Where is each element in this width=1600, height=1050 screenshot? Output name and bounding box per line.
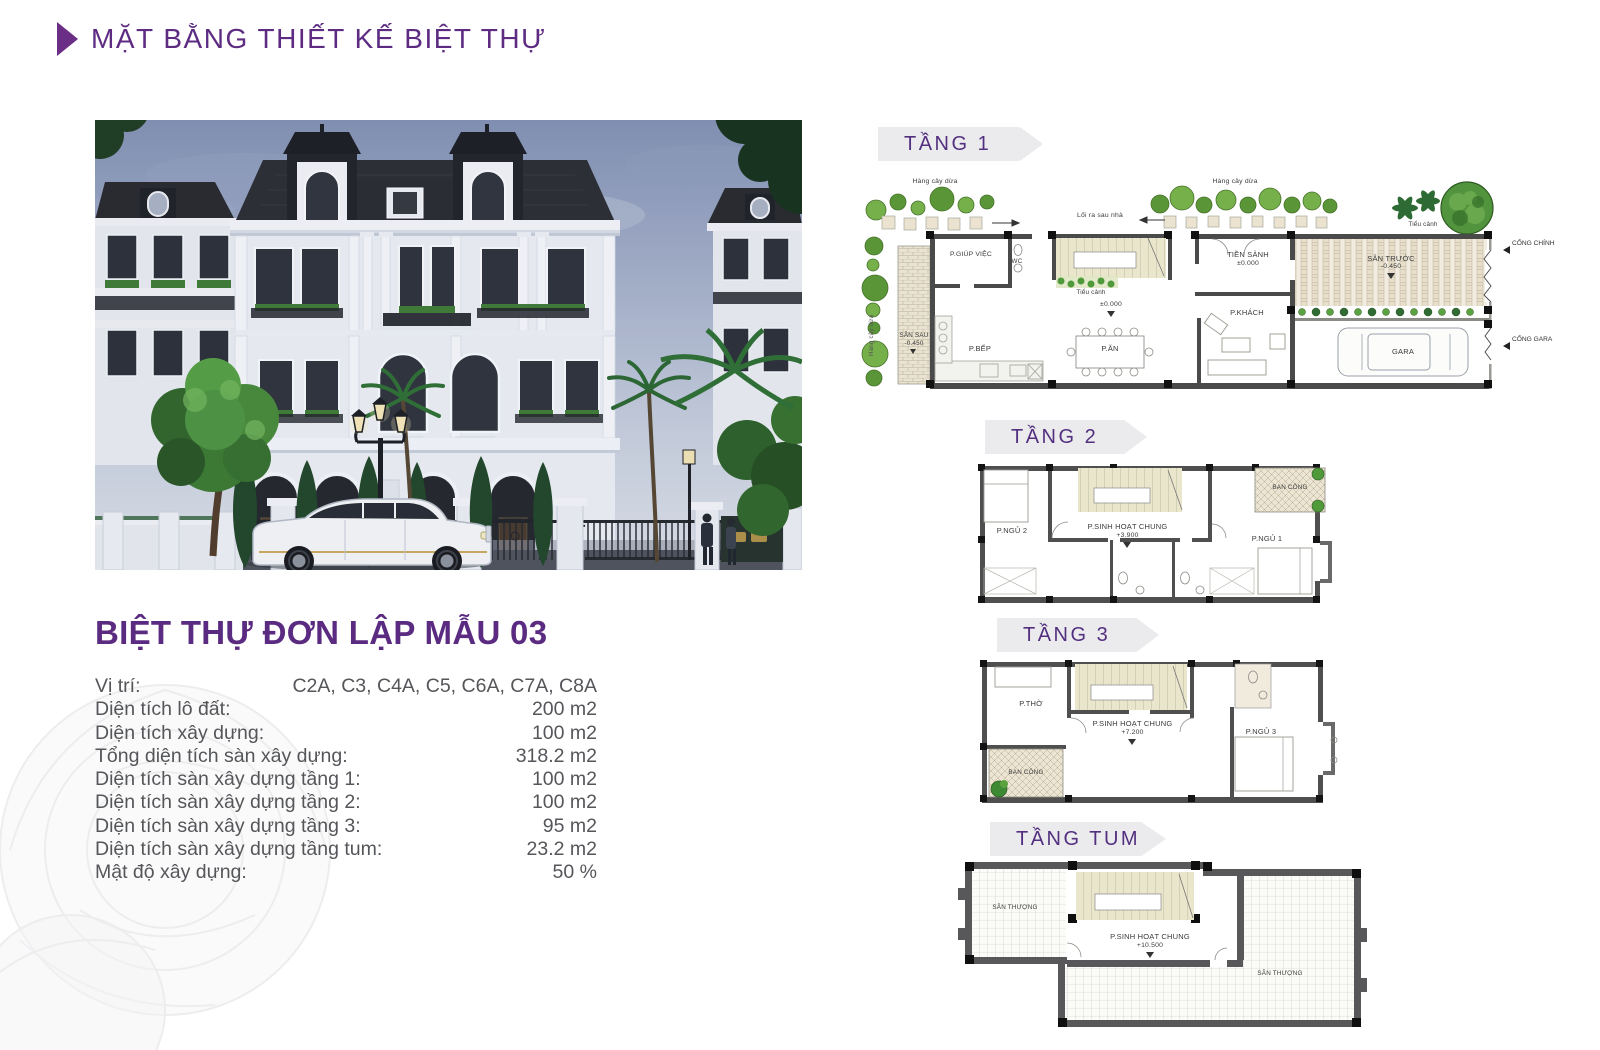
spec-label: Diện tích xây dựng:	[95, 722, 264, 745]
spec-label: Mật độ xây dựng:	[95, 861, 247, 884]
villa-title: BIỆT THỰ ĐƠN LẬP MẪU 03	[95, 614, 547, 652]
banner-floor1: TẦNG 1	[878, 127, 1043, 161]
label-bedroom1: P.NGỦ 1	[1232, 534, 1302, 543]
banner-floor3-label: TẦNG 3	[1023, 624, 1110, 647]
brochure-page: { "page": { "section_title": "MẶT BẰNG T…	[0, 0, 1600, 1044]
spec-value: 318.2 m2	[516, 745, 597, 768]
spec-row: Mật độ xây dựng:50 %	[95, 861, 597, 884]
spec-label: Diện tích sàn xây dựng tầng 3:	[95, 815, 361, 838]
spec-value: 200 m2	[532, 698, 597, 721]
label-bedroom2: P.NGỦ 2	[980, 526, 1044, 535]
label-coconut-row-right: Hàng cây dừa	[1190, 178, 1280, 186]
label-common-room: P.SINH HOẠT CHUNG	[1065, 522, 1190, 531]
spec-row: Diện tích lô đất:200 m2	[95, 698, 597, 721]
label-balcony: BAN CÔNG	[1256, 484, 1324, 492]
label-front-yard-level: -0.450	[1351, 263, 1431, 271]
label-maid-room: P.GIÚP VIỆC	[944, 251, 998, 259]
floorplan-tum-drawing	[955, 848, 1367, 1034]
spec-row: Vị trí:C2A, C3, C4A, C5, C6A, C7A, C8A	[95, 675, 597, 698]
banner-floor1-label: TẦNG 1	[904, 133, 991, 156]
banner-floor2-label: TẦNG 2	[1011, 426, 1098, 449]
label-back-yard: SÂN SAU	[894, 332, 934, 340]
label-coconut-row-left: Hàng cây dừa	[890, 178, 980, 186]
villa-render	[95, 120, 802, 570]
label-common-room: P.SINH HOẠT CHUNG	[1075, 932, 1225, 941]
spec-row: Tổng diện tích sàn xây dựng:318.2 m2	[95, 745, 597, 768]
arrow-bullet-icon	[57, 22, 78, 56]
spec-value: 23.2 m2	[527, 838, 597, 861]
label-coconut-column: Hàng cây dừa	[868, 315, 875, 356]
floorplan-3: P.THỜ P.SINH HOẠT CHUNG +7.200 P.NGỦ 3 B…	[935, 645, 1345, 811]
label-back-yard-level: -0.450	[894, 340, 934, 348]
spec-value: 100 m2	[532, 768, 597, 791]
section-title: MẶT BẰNG THIẾT KẾ BIỆT THỰ	[91, 23, 547, 55]
label-common-level: +3.900	[1065, 532, 1190, 540]
label-gate-main: CỔNG CHÍNH	[1512, 240, 1556, 248]
spec-label: Diện tích sàn xây dựng tầng 1:	[95, 768, 361, 791]
level-marker-icon	[1146, 952, 1154, 958]
level-marker-icon	[1387, 273, 1395, 279]
label-balcony: BAN CÔNG	[991, 769, 1061, 777]
spec-label: Vị trí:	[95, 675, 141, 698]
floorplan-1-drawing	[860, 168, 1560, 404]
label-worship-room: P.THỜ	[1001, 699, 1061, 708]
banner-floor2: TẦNG 2	[985, 420, 1147, 454]
spec-value: 100 m2	[532, 791, 597, 814]
label-common-level: +7.200	[1070, 729, 1195, 737]
spec-value: 50 %	[553, 861, 597, 884]
gate-arrow-icon	[1503, 246, 1510, 254]
label-gate-garage: CỔNG GARA	[1512, 336, 1556, 344]
label-terrace-right: SÂN THƯỢNG	[1215, 970, 1345, 978]
level-marker-icon	[1128, 739, 1136, 745]
spec-table: Vị trí:C2A, C3, C4A, C5, C6A, C7A, C8A D…	[95, 675, 597, 885]
label-mini-garden: Tiểu cảnh	[1056, 289, 1126, 297]
spec-value: C2A, C3, C4A, C5, C6A, C7A, C8A	[292, 675, 597, 698]
floorplan-2: P.NGỦ 2 P.SINH HOẠT CHUNG +3.900 P.NGỦ 1…	[960, 450, 1335, 606]
label-bedroom3: P.NGỦ 3	[1227, 727, 1295, 736]
level-marker-icon	[1123, 542, 1131, 548]
label-hall: TIỀN SẢNH	[1210, 250, 1286, 259]
spec-row: Diện tích sàn xây dựng tầng 3:95 m2	[95, 815, 597, 838]
label-common-room: P.SINH HOẠT CHUNG	[1070, 719, 1195, 728]
label-level-zero: ±0.000	[1086, 301, 1136, 309]
label-dining: P.ĂN	[1082, 344, 1138, 353]
label-garage: GARA	[1373, 347, 1433, 356]
label-mini-garden-right: Tiểu cảnh	[1396, 221, 1450, 229]
floorplan-tum: SÂN THƯỢNG P.SINH HOẠT CHUNG +10.500 SÂN…	[955, 848, 1367, 1034]
label-living: P.KHÁCH	[1212, 308, 1282, 317]
label-wc: WC	[1006, 258, 1028, 266]
section-header: MẶT BẰNG THIẾT KẾ BIỆT THỰ	[57, 22, 547, 56]
label-terrace-left: SÂN THƯỢNG	[969, 904, 1061, 912]
floorplan-1: Hàng cây dừa Hàng cây dừa Hàng cây dừa L…	[860, 168, 1560, 404]
level-marker-icon	[910, 349, 916, 354]
gate-arrow-icon	[1503, 342, 1510, 350]
spec-row: Diện tích sàn xây dựng tầng 1:100 m2	[95, 768, 597, 791]
spec-value: 95 m2	[543, 815, 597, 838]
label-hall-level: ±0.000	[1210, 260, 1286, 268]
label-kitchen: P.BẾP	[952, 344, 1008, 353]
spec-value: 100 m2	[532, 722, 597, 745]
villa-photo	[95, 120, 802, 570]
level-marker-icon	[1107, 311, 1115, 317]
spec-row: Diện tích xây dựng:100 m2	[95, 722, 597, 745]
label-common-level: +10.500	[1075, 942, 1225, 950]
spec-label: Diện tích sàn xây dựng tầng tum:	[95, 838, 382, 861]
spec-row: Diện tích sàn xây dựng tầng tum:23.2 m2	[95, 838, 597, 861]
spec-label: Diện tích lô đất:	[95, 698, 231, 721]
spec-row: Diện tích sàn xây dựng tầng 2:100 m2	[95, 791, 597, 814]
label-front-yard: SÂN TRƯỚC	[1351, 254, 1431, 263]
label-back-exit: Lối ra sau nhà	[1060, 212, 1140, 220]
spec-label: Tổng diện tích sàn xây dựng:	[95, 745, 348, 768]
spec-label: Diện tích sàn xây dựng tầng 2:	[95, 791, 361, 814]
